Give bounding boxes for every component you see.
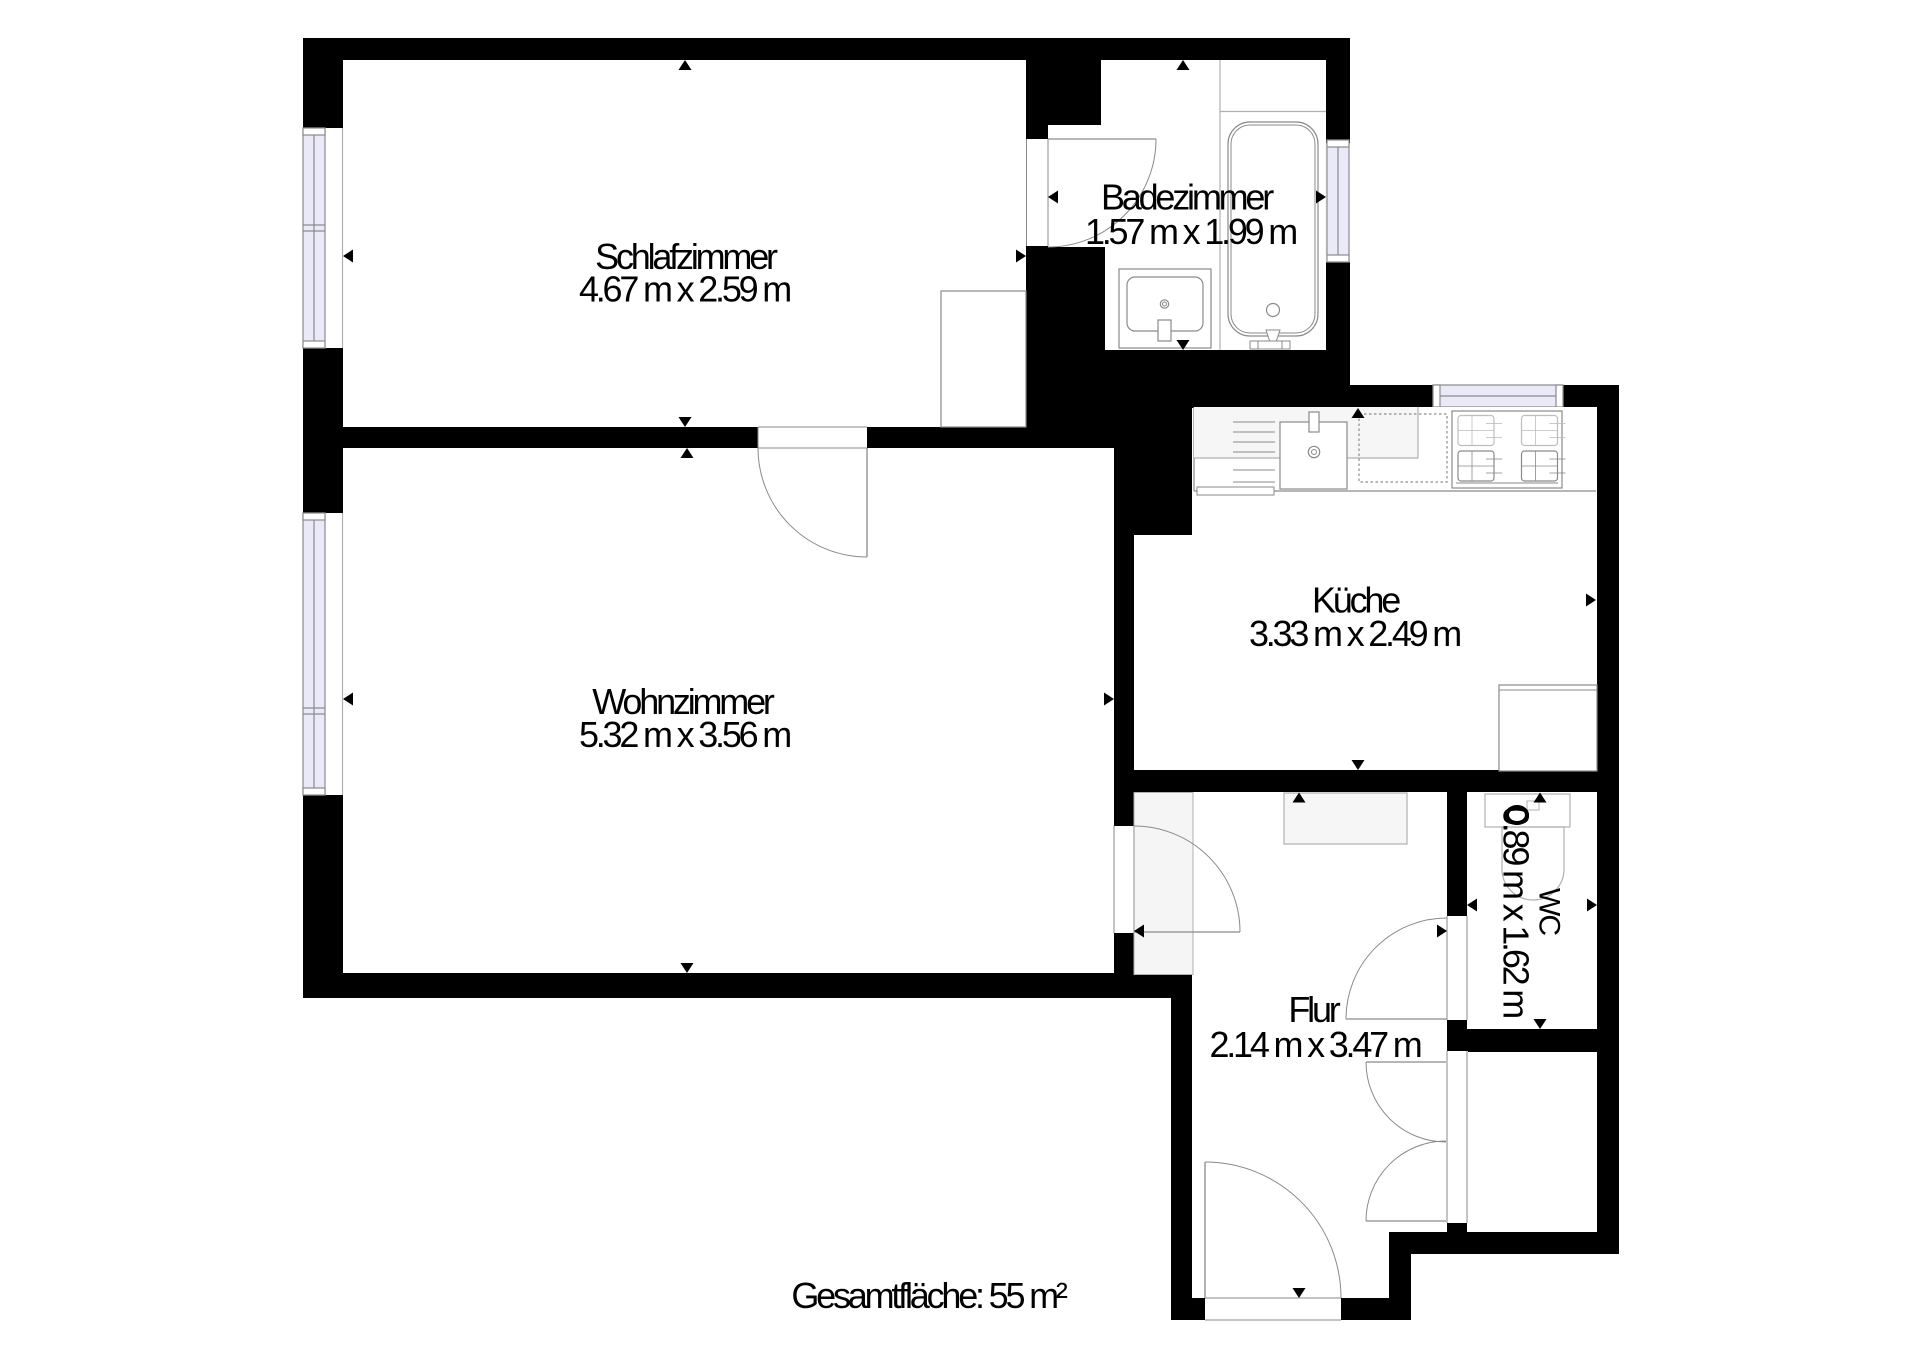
svg-text:2.14 m x 3.47 m: 2.14 m x 3.47 m: [1209, 1024, 1420, 1065]
svg-text:Gesamtfläche: 55 m²: Gesamtfläche: 55 m²: [791, 1275, 1068, 1316]
svg-text:4.67 m x 2.59 m: 4.67 m x 2.59 m: [579, 269, 790, 310]
svg-text:1.57 m x 1.99 m: 1.57 m x 1.99 m: [1085, 211, 1296, 252]
svg-text:0.89 m x 1.62 m: 0.89 m x 1.62 m: [1496, 806, 1537, 1017]
svg-text:3.33 m x 2.49 m: 3.33 m x 2.49 m: [1249, 613, 1460, 654]
svg-text:5.32 m x 3.56 m: 5.32 m x 3.56 m: [579, 714, 790, 755]
